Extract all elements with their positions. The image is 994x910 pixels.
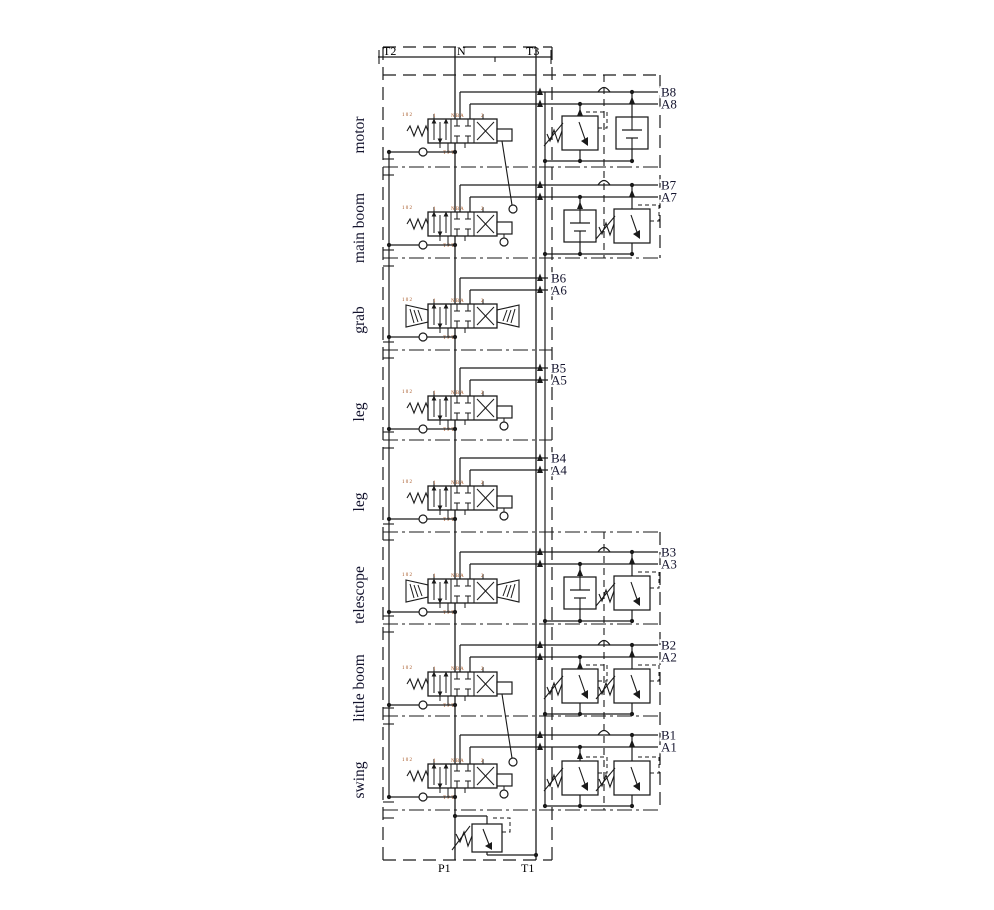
lever-knob: [500, 512, 508, 520]
valve-marking: 2: [481, 114, 484, 119]
valve-marking: 1: [433, 114, 436, 119]
section-label-leg: leg: [351, 492, 368, 511]
valve-marking: 1 0 2: [402, 206, 413, 211]
work-port-label-A5: A5: [551, 373, 567, 388]
valve-marking: N B A: [451, 114, 464, 119]
work-port-label-A1: A1: [661, 740, 677, 755]
valve-marking: 2: [481, 759, 484, 764]
valve-marking: 1 0 2: [402, 573, 413, 578]
section-main-boom-B7: B7A71 0 21N B A2T P T: [387, 178, 677, 257]
work-port-label-A3: A3: [661, 557, 677, 572]
valve-marking: N B A: [451, 759, 464, 764]
section-label-grab: grab: [351, 306, 368, 334]
valve-marking: 2: [481, 481, 484, 486]
work-port-label-A2: A2: [661, 650, 677, 665]
section-telescope-B3: B3A31 0 21N B A2T P T: [387, 545, 677, 624]
valve-marking: 2: [481, 391, 484, 396]
port-label-T1: T1: [521, 861, 534, 875]
load-check-valve: [419, 701, 427, 709]
work-port-label-A7: A7: [661, 190, 677, 205]
valve-marking: N B A: [451, 299, 464, 304]
lever-knob: [500, 790, 508, 798]
valve-marking: 1 0 2: [402, 113, 413, 118]
section-label-little-boom: little boom: [351, 654, 368, 722]
valve-marking: 2: [481, 574, 484, 579]
port-label-T3: T3: [526, 44, 539, 58]
load-check-valve: [419, 793, 427, 801]
load-check-valve: [419, 241, 427, 249]
valve-marking: N B A: [451, 667, 464, 672]
directional-valve-leg: 1 0 21N B A2T P T: [402, 390, 512, 433]
work-port-label-A4: A4: [551, 463, 567, 478]
load-check-valve: [419, 425, 427, 433]
section-label-main-boom: main boom: [351, 193, 368, 263]
section-label-leg: leg: [351, 402, 368, 421]
valve-marking: 2: [481, 207, 484, 212]
lever-knob: [500, 422, 508, 430]
valve-marking: N B A: [451, 481, 464, 486]
pilot-relief-valve: [544, 745, 607, 806]
main-relief-valve: [452, 814, 538, 857]
pilot-relief-valve: [596, 550, 659, 621]
section-grab-B6: B6A61 0 21N B A2T P T: [387, 271, 567, 342]
valve-marking: N B A: [451, 391, 464, 396]
pilot-relief-valve: [544, 102, 607, 161]
work-port-label-A6: A6: [551, 283, 567, 298]
check-valve: [616, 90, 648, 161]
port-label-P1: P1: [438, 861, 451, 875]
section-leg-B4: B4A41 0 21N B A2T P T: [387, 451, 567, 524]
valve-marking: 1: [433, 481, 436, 486]
valve-marking: N B A: [451, 574, 464, 579]
valve-marking: 1 0 2: [402, 480, 413, 485]
load-check-valve: [419, 148, 427, 156]
directional-valve-leg: 1 0 21N B A2T P T: [402, 480, 512, 523]
port-label-N: N: [457, 44, 466, 58]
check-valve: [564, 195, 596, 254]
valve-sections: B8A81 0 21N B A2T P TB7A71 0 21N B A2T P…: [387, 85, 677, 809]
valve-marking: 1 0 2: [402, 666, 413, 671]
lever-knob: [500, 238, 508, 246]
valve-marking: 1 0 2: [402, 758, 413, 763]
schematic-canvas: B8A81 0 21N B A2T P TB7A71 0 21N B A2T P…: [0, 0, 994, 910]
lever-knob: [509, 758, 517, 766]
load-check-valve: [419, 608, 427, 616]
check-valve: [564, 562, 596, 621]
section-label-motor: motor: [351, 116, 368, 154]
valve-marking: 1 0 2: [402, 390, 413, 395]
valve-marking: N B A: [451, 207, 464, 212]
pilot-relief-valve: [596, 733, 659, 806]
valve-marking: 2: [481, 299, 484, 304]
valve-block-frame: [378, 47, 660, 860]
valve-marking: 1 0 2: [402, 298, 413, 303]
valve-marking: 1: [433, 391, 436, 396]
pilot-relief-valve: [596, 183, 659, 254]
valve-marking: 2: [481, 667, 484, 672]
work-port-label-A8: A8: [661, 97, 677, 112]
valve-marking: 1: [433, 667, 436, 672]
lever-knob: [509, 205, 517, 213]
directional-valve-swing: 1 0 21N B A2T P T: [402, 758, 512, 801]
pilot-relief-valve: [544, 655, 607, 714]
section-label-telescope: telescope: [351, 566, 368, 624]
section-leg-B5: B5A51 0 21N B A2T P T: [387, 361, 567, 434]
valve-marking: 1: [433, 299, 436, 304]
directional-valve-main-boom: 1 0 21N B A2T P T: [402, 206, 512, 249]
hydraulic-schematic: B8A81 0 21N B A2T P TB7A71 0 21N B A2T P…: [0, 0, 994, 910]
load-check-valve: [419, 333, 427, 341]
valve-marking: 1: [433, 207, 436, 212]
valve-marking: 1: [433, 574, 436, 579]
load-check-valve: [419, 515, 427, 523]
port-label-T2: T2: [383, 44, 396, 58]
section-swing-B1: B1A11 0 21N B A2T P T: [387, 728, 677, 809]
pilot-relief-valve: [596, 643, 659, 714]
valve-marking: 1: [433, 759, 436, 764]
section-label-swing: swing: [351, 761, 368, 798]
